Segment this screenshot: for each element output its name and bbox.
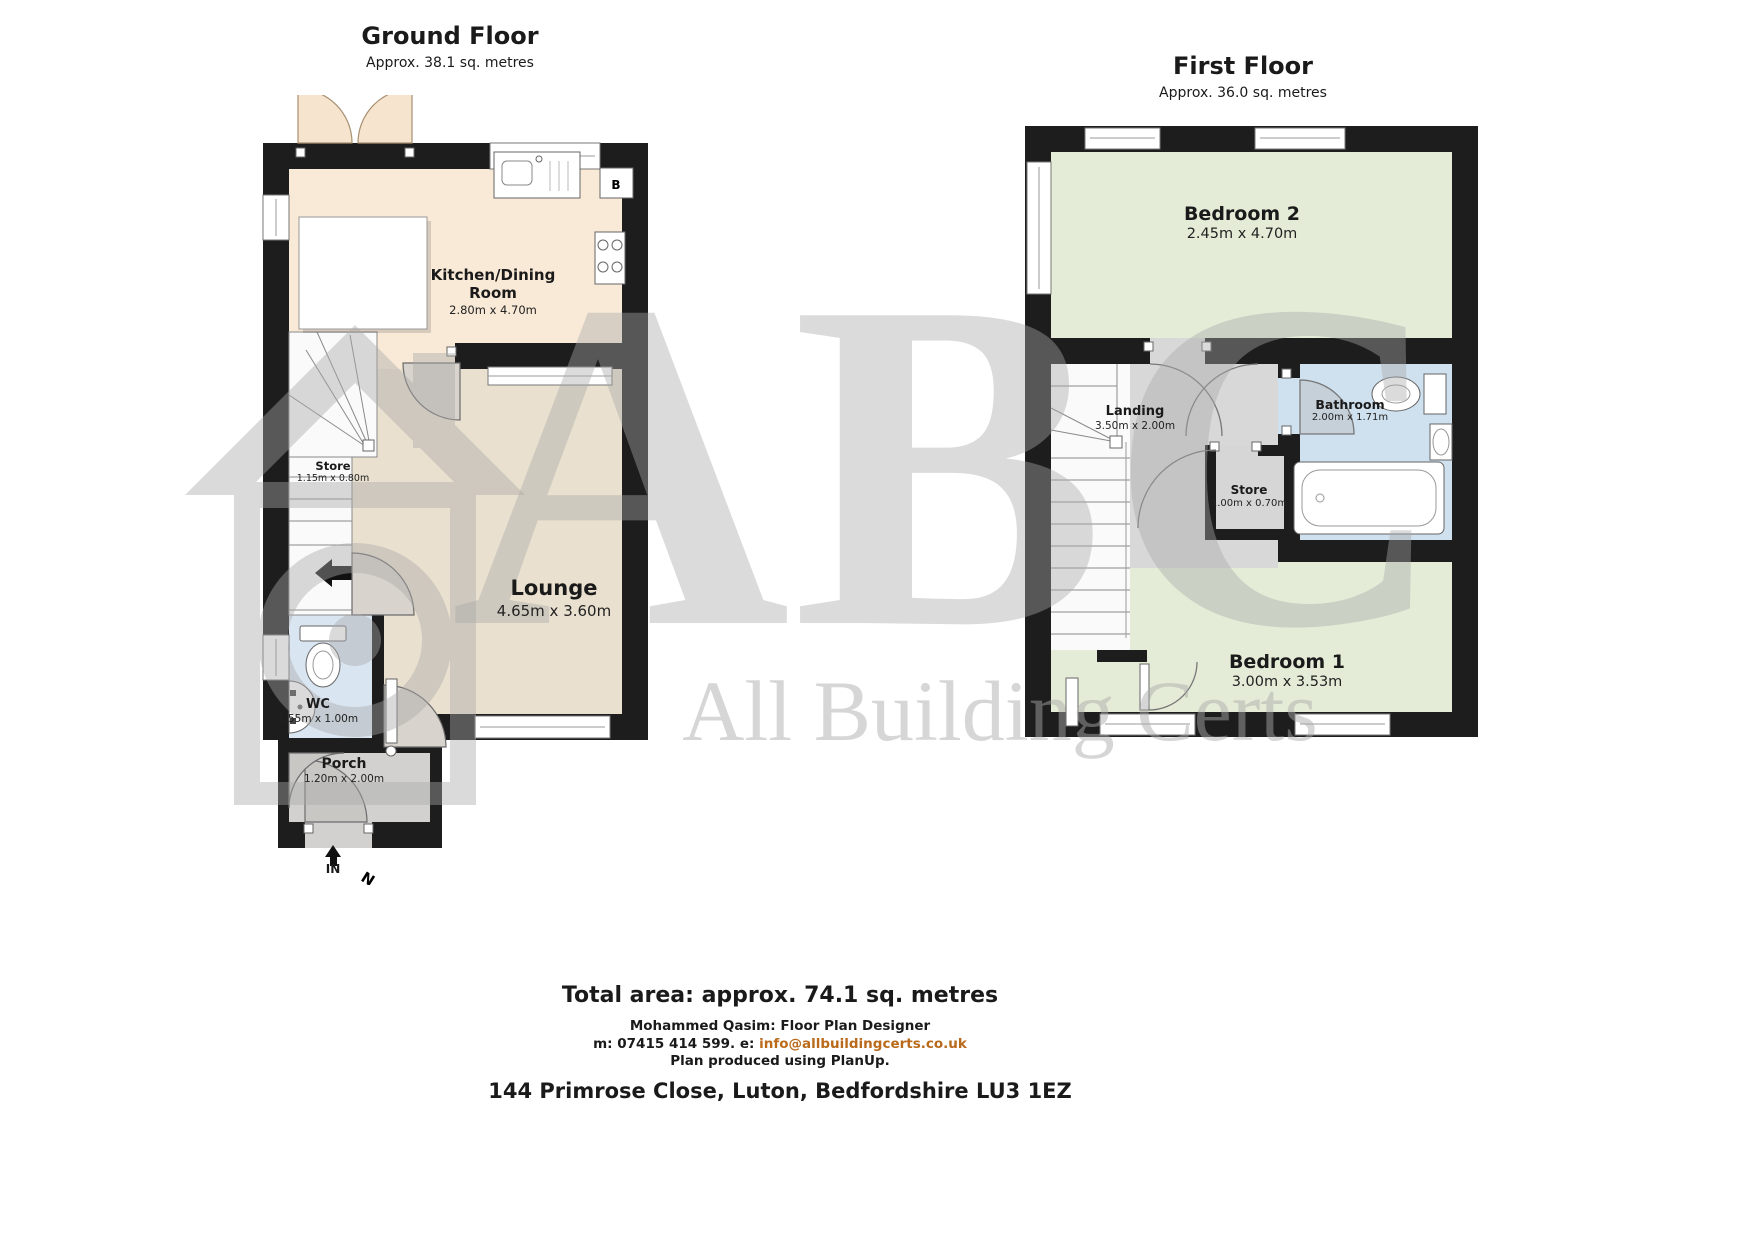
bathtub	[1294, 462, 1444, 534]
porch-label: Porch 1.20m x 2.00m	[284, 756, 404, 786]
wc-porch-wall	[289, 738, 372, 753]
first-floor-subtitle: Approx. 36.0 sq. metres	[1043, 85, 1443, 102]
bedroom2-floor	[1051, 152, 1452, 338]
internal-window	[488, 367, 612, 385]
french-door-left	[298, 95, 352, 143]
first-floor-title: First Floor	[1043, 52, 1443, 81]
landing-label: Landing 3.50m x 2.00m	[1060, 404, 1210, 433]
property-address: 144 Primrose Close, Luton, Bedfordshire …	[330, 1079, 1230, 1103]
boiler: B	[600, 168, 633, 198]
french-door-right	[358, 95, 412, 143]
ff-store-label: Store 1.00m x 0.70m	[1189, 483, 1309, 510]
hob	[595, 232, 625, 284]
bedroom2-label: Bedroom 2 2.45m x 4.70m	[1092, 203, 1392, 244]
gf-store-label: Store 1.15m x 0.80m	[273, 459, 393, 485]
ground-floor-title-block: Ground Floor Approx. 38.1 sq. metres	[250, 22, 650, 72]
kitchen-label: Kitchen/Dining Room 2.80m x 4.70m	[393, 266, 593, 317]
bathroom-sink	[1430, 424, 1452, 460]
contact-email: info@allbuildingcerts.co.uk	[759, 1036, 967, 1052]
first-floor-title-block: First Floor Approx. 36.0 sq. metres	[1043, 52, 1443, 102]
ground-floor-title: Ground Floor	[250, 22, 650, 51]
produced-by: Plan produced using PlanUp.	[330, 1053, 1230, 1069]
designer-credit: Mohammed Qasim: Floor Plan Designer	[330, 1018, 1230, 1034]
bathroom-label: Bathroom 2.00m x 1.71m	[1280, 397, 1420, 424]
bedroom1-label: Bedroom 1 3.00m x 3.53m	[1137, 651, 1437, 692]
kitchen-sink	[494, 152, 580, 198]
entrance-opening	[305, 822, 372, 848]
svg-text:B: B	[611, 178, 620, 192]
ground-floor-subtitle: Approx. 38.1 sq. metres	[250, 55, 650, 72]
contact-line: m: 07415 414 599. e: info@allbuildingcer…	[330, 1036, 1230, 1052]
lounge-label: Lounge 4.65m x 3.60m	[454, 576, 654, 620]
wc-right-wall	[372, 615, 384, 753]
entry-label: IN	[303, 862, 363, 877]
total-area: Total area: approx. 74.1 sq. metres	[330, 983, 1230, 1008]
wc-label: WC 1.55m x 1.00m	[258, 697, 378, 726]
contact-phone: m: 07415 414 599. e:	[593, 1036, 759, 1052]
floorplan-document: B	[0, 0, 1755, 1240]
kitchen-lounge-wall	[455, 343, 622, 369]
bedroom1-radiator	[1066, 678, 1078, 726]
